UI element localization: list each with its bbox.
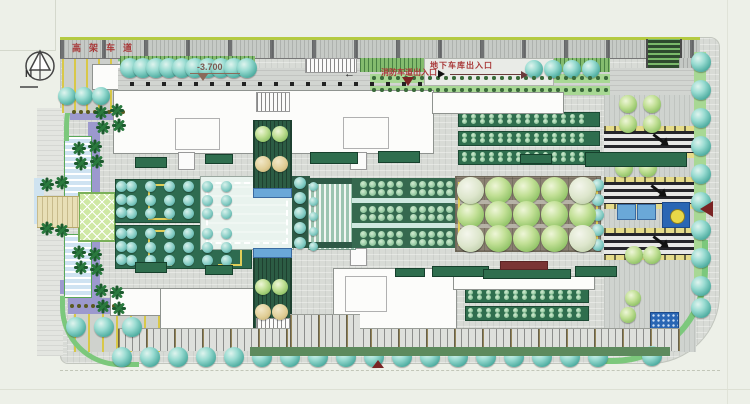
- building-tab-4: [350, 248, 367, 266]
- zebra-crossing-2: [604, 182, 696, 204]
- building-core-se: [345, 276, 387, 312]
- building-tab-1: [178, 152, 195, 170]
- site-plan: N 高架车道 -3.700 地下车库出入口 消防车道出入口 ←: [0, 0, 750, 404]
- building-tab-2: [350, 152, 367, 170]
- axis-water-north: [253, 188, 292, 198]
- axis-water-south: [253, 248, 292, 258]
- reflecting-pool-1: [617, 204, 636, 220]
- east-entrance-marker-icon: [700, 201, 713, 217]
- south-entrance-marker-icon: [372, 360, 384, 368]
- axis-planter-north: [253, 120, 292, 198]
- orchard-seam-2: [455, 224, 599, 228]
- zebra-crossing-1: [604, 131, 696, 153]
- north-label: N: [25, 69, 32, 80]
- north-arrow: N: [18, 46, 62, 92]
- hedge-strip-ne-1: [458, 112, 600, 127]
- palm-bed-upper: [64, 136, 92, 200]
- building-south-strip: [453, 276, 595, 290]
- hedge-strip-se-2: [465, 306, 589, 321]
- parking-stalls-mid: [290, 314, 360, 351]
- fire-lane-marker-icon: [402, 77, 414, 86]
- left-walk-strip: [37, 108, 63, 356]
- fountain-jet: [670, 209, 685, 224]
- yellow-bracket-1: [148, 184, 172, 220]
- building-core-nw: [175, 118, 220, 150]
- parking-stalls-south: [118, 328, 680, 351]
- axis-bridge-north: [256, 92, 290, 112]
- stepped-water-feature: [308, 178, 356, 250]
- water-feature-cap-bottom: [308, 242, 354, 248]
- yellow-bracket-3: [148, 230, 172, 266]
- water-feature-cap-top: [308, 178, 354, 184]
- palm-bed-lower: [64, 234, 92, 298]
- orchard-court: [455, 176, 601, 252]
- orchard-bracket-right: [586, 182, 598, 246]
- elevation-label: -3.700: [197, 62, 223, 72]
- outer-road-dashed-line: [60, 370, 720, 371]
- orchard-bracket-left: [458, 182, 470, 246]
- hedge-strip-se-1: [465, 288, 589, 303]
- elevation-marker-icon: [198, 74, 208, 81]
- elevated-road-label: 高架车道: [72, 41, 140, 54]
- outer-road-line-right: [727, 0, 728, 404]
- hedge-strip-ne-3: [458, 150, 600, 165]
- hedge-strip-ne-2: [458, 131, 600, 146]
- road-yellow-strip-2: [604, 153, 696, 158]
- building-north-wing-east: [432, 92, 564, 114]
- outer-road-line-vertical: [55, 0, 56, 50]
- reflecting-pool-2: [637, 204, 656, 220]
- orchard-seam-1: [455, 200, 599, 204]
- green-strip-left: [120, 56, 255, 68]
- west-entry-walkway: [37, 196, 79, 228]
- building-core-ne: [343, 117, 389, 149]
- garage-arrow-start-icon: [438, 70, 445, 78]
- terrace-strip-3: [352, 228, 455, 248]
- terrace-strip-2: [352, 203, 455, 223]
- service-arrow-icon: ←: [344, 68, 355, 80]
- garage-arrow-icon: [450, 74, 522, 75]
- terrace-strip-1: [352, 178, 455, 198]
- entry-fountain: [662, 202, 690, 228]
- outer-road-edge-line: [0, 389, 750, 390]
- lattice-planter: [78, 192, 116, 242]
